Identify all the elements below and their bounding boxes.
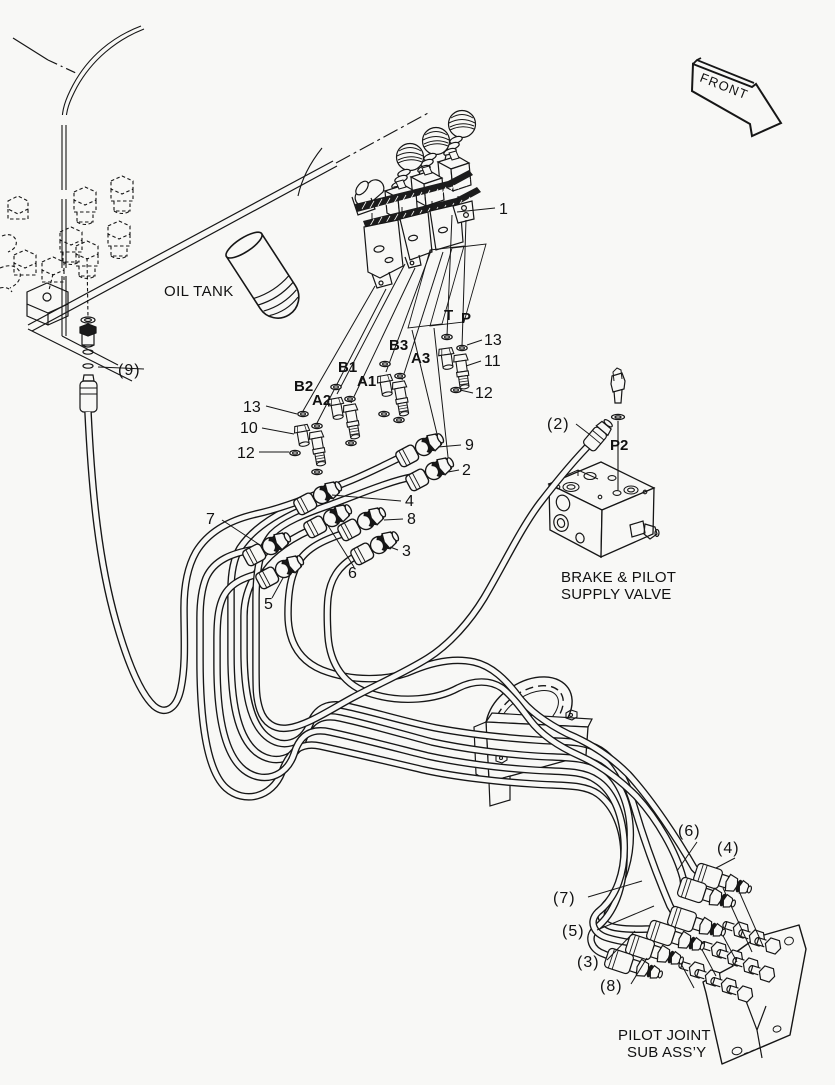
svg-text:(8): (8) bbox=[600, 978, 623, 995]
svg-text:7: 7 bbox=[206, 511, 215, 528]
svg-text:(2): (2) bbox=[547, 416, 570, 433]
svg-text:P2: P2 bbox=[610, 437, 628, 454]
svg-text:A1: A1 bbox=[357, 373, 376, 390]
svg-text:4: 4 bbox=[405, 493, 414, 510]
svg-text:13: 13 bbox=[243, 399, 261, 416]
svg-text:12: 12 bbox=[237, 445, 255, 462]
svg-text:PILOT JOINT: PILOT JOINT bbox=[618, 1027, 711, 1044]
svg-text:B2: B2 bbox=[294, 378, 313, 395]
svg-text:(3): (3) bbox=[577, 954, 600, 971]
svg-text:(6): (6) bbox=[678, 823, 701, 840]
svg-text:13: 13 bbox=[484, 332, 502, 349]
svg-text:(7): (7) bbox=[553, 890, 576, 907]
svg-text:SUB ASS’Y: SUB ASS’Y bbox=[627, 1044, 706, 1061]
svg-text:(9): (9) bbox=[118, 362, 141, 379]
svg-text:BRAKE & PILOT: BRAKE & PILOT bbox=[561, 569, 676, 586]
svg-text:12: 12 bbox=[475, 385, 493, 402]
svg-text:B3: B3 bbox=[389, 337, 408, 354]
svg-text:B1: B1 bbox=[338, 359, 357, 376]
svg-text:3: 3 bbox=[402, 543, 411, 560]
svg-text:5: 5 bbox=[264, 596, 273, 613]
svg-text:P: P bbox=[461, 310, 471, 327]
svg-text:2: 2 bbox=[462, 462, 471, 479]
svg-text:6: 6 bbox=[348, 565, 357, 582]
svg-text:T: T bbox=[444, 307, 453, 324]
svg-text:(5): (5) bbox=[562, 923, 585, 940]
svg-text:(4): (4) bbox=[717, 840, 740, 857]
svg-text:OIL TANK: OIL TANK bbox=[164, 283, 234, 300]
svg-text:1: 1 bbox=[499, 201, 508, 218]
svg-text:SUPPLY VALVE: SUPPLY VALVE bbox=[561, 586, 672, 603]
svg-text:10: 10 bbox=[240, 420, 258, 437]
svg-text:A2: A2 bbox=[312, 392, 331, 409]
svg-text:8: 8 bbox=[407, 511, 416, 528]
svg-text:A3: A3 bbox=[411, 350, 430, 367]
svg-text:9: 9 bbox=[465, 437, 474, 454]
svg-text:11: 11 bbox=[484, 353, 501, 370]
